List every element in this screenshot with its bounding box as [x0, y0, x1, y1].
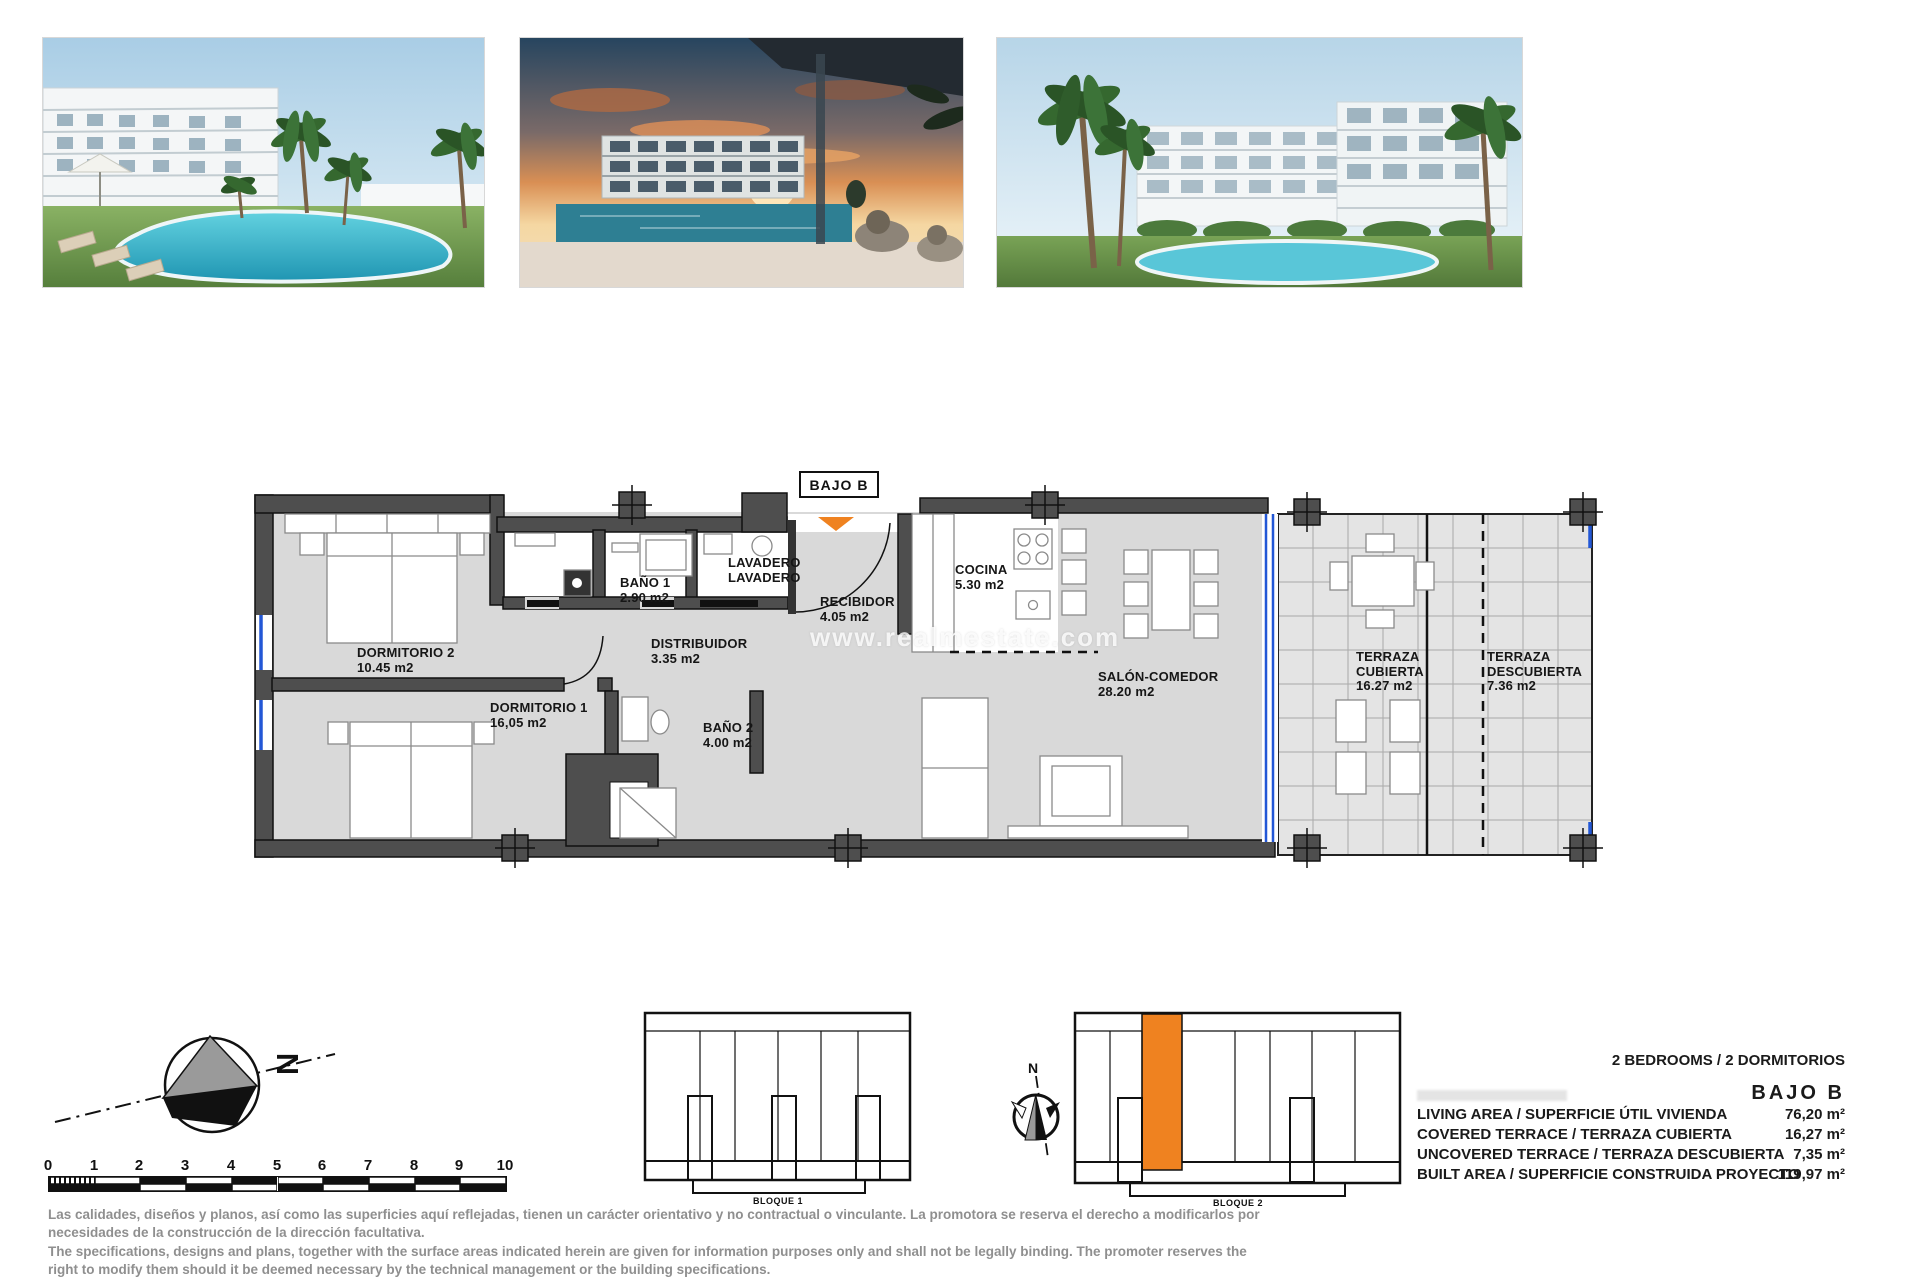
spec-row-uncovered-terrace: UNCOVERED TERRACE / TERRAZA DESCUBIERTA …: [1417, 1146, 1845, 1166]
big-compass: [55, 1036, 335, 1132]
scale-tick: 1: [90, 1157, 98, 1174]
spec-row-covered-terrace: COVERED TERRACE / TERRAZA CUBIERTA 16,27…: [1417, 1126, 1845, 1146]
watermark: www.realmestate.com: [810, 622, 1120, 653]
unit-label-box: BAJO B: [799, 471, 879, 498]
small-compass-north-label: N: [1028, 1060, 1038, 1076]
spec-row-living-area: LIVING AREA / SUPERFICIE ÚTIL VIVIENDA 7…: [1417, 1106, 1845, 1126]
disclaimer-es-line-1: Las calidades, diseños y planos, así com…: [48, 1206, 1488, 1224]
scale-tick: 8: [410, 1157, 418, 1174]
scale-tick: 7: [364, 1157, 372, 1174]
room-label-terraza-cubierta: TERRAZA CUBIERTA 16.27 m2: [1356, 650, 1436, 694]
scale-tick: 4: [227, 1157, 235, 1174]
brochure-page: BAJO B www.realmestate.com DORMITORIO 2 …: [0, 0, 1920, 1280]
highlighted-unit-bajo-b: [1142, 1014, 1182, 1170]
big-compass-north-label: N: [269, 1053, 305, 1075]
room-label-lavadero: LAVADERO LAVADERO: [728, 556, 801, 585]
room-label-bano-2: BAÑO 2 4.00 m2: [703, 721, 753, 750]
scale-tick: 0: [44, 1157, 52, 1174]
room-label-terraza-descubierta: TERRAZA DESCUBIERTA 7.36 m2: [1487, 650, 1581, 694]
room-label-dormitorio-1: DORMITORIO 1 16,05 m2: [490, 701, 588, 730]
bedrooms-header: 2 BEDROOMS / 2 DORMITORIOS: [1417, 1052, 1845, 1069]
bloque-1-diagram: [645, 1013, 910, 1193]
room-label-cocina: COCINA 5.30 m2: [955, 563, 1007, 592]
scale-tick: 2: [135, 1157, 143, 1174]
salon-glazing: [1262, 514, 1278, 842]
scale-tick: 3: [181, 1157, 189, 1174]
spec-row-built-area: BUILT AREA / SUPERFICIE CONSTRUIDA PROYE…: [1417, 1166, 1845, 1186]
bloque-1-label: BLOQUE 1: [738, 1196, 818, 1206]
scale-tick: 10: [497, 1157, 514, 1174]
small-compass: [1012, 1076, 1060, 1158]
room-label-recibidor: RECIBIDOR 4.05 m2: [820, 595, 895, 624]
scale-bar: [48, 1176, 507, 1192]
room-label-distribuidor: DISTRIBUIDOR 3.35 m2: [651, 637, 747, 666]
room-label-salon-comedor: SALÓN-COMEDOR 28.20 m2: [1098, 670, 1218, 699]
scale-tick: 5: [273, 1157, 281, 1174]
room-label-dormitorio-2: DORMITORIO 2 10.45 m2: [357, 646, 455, 675]
faded-text-artifact: [1417, 1090, 1567, 1101]
scale-tick: 6: [318, 1157, 326, 1174]
bloque-2-diagram: [1075, 1013, 1400, 1196]
disclaimer-en-line-1: The specifications, designs and plans, t…: [48, 1243, 1488, 1261]
disclaimer-es-line-2: necesidades de la construcción de la dir…: [48, 1224, 1488, 1242]
scale-tick: 9: [455, 1157, 463, 1174]
room-label-bano-1: BAÑO 1 2.90 m2: [620, 576, 670, 605]
disclaimer-en-line-2: right to modify them should it be deemed…: [48, 1261, 1488, 1279]
